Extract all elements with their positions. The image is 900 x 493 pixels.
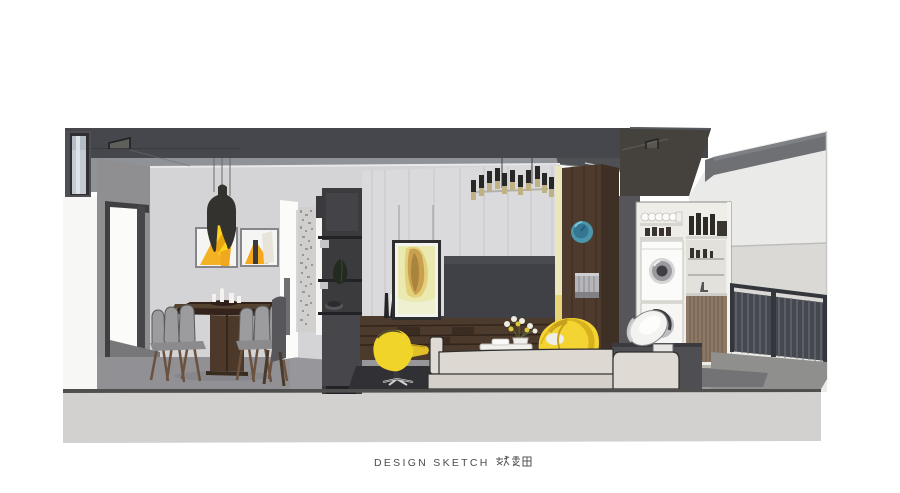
svg-text:DESIGN SKETCH: DESIGN SKETCH [374,457,490,469]
